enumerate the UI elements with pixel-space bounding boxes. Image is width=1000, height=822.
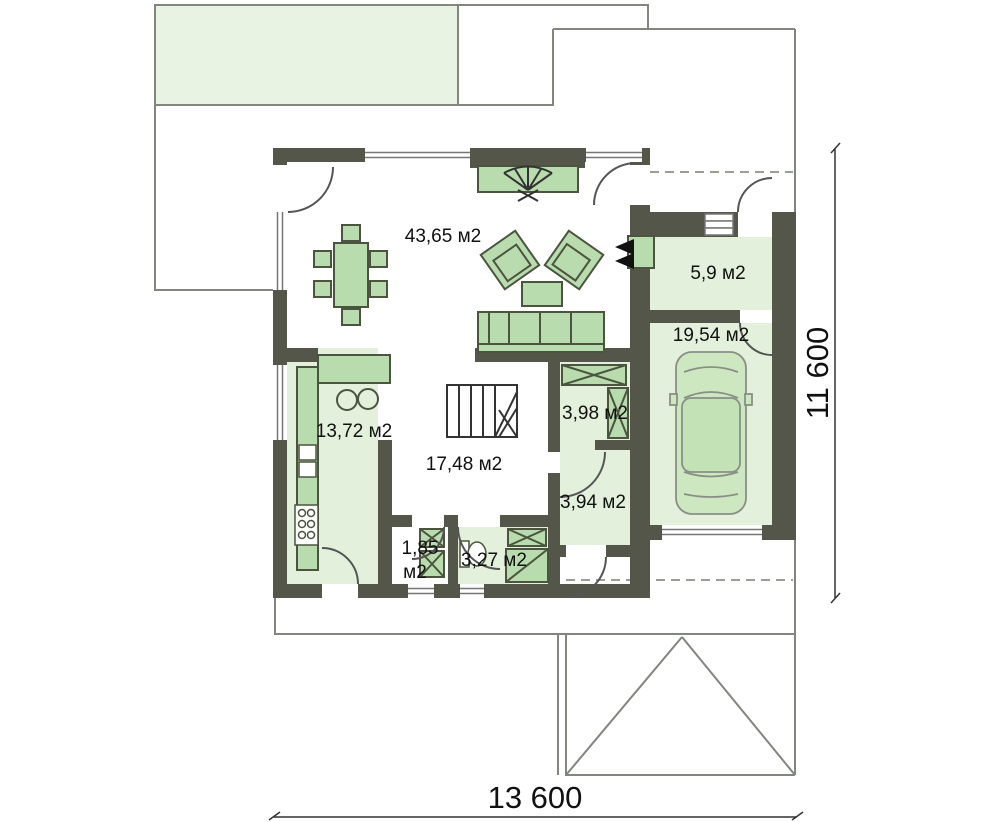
wall-kitchen-hall xyxy=(378,440,392,584)
wall-garage-south-right xyxy=(762,525,796,540)
garage-area-label: 19,54 м2 xyxy=(673,325,749,346)
bathroom-area-label: 3,27 м2 xyxy=(461,550,527,571)
entry-steps xyxy=(705,214,733,235)
hall-area-label: 17,48 м2 xyxy=(426,454,502,475)
flue-arrow-icon xyxy=(615,253,634,269)
roof-green-area xyxy=(155,5,458,105)
kitchen-area-label: 13,72 м2 xyxy=(316,421,392,442)
floor-plan-drawing: 43,65 м2 5,9 м2 19,54 м2 13,72 м2 3,98 м… xyxy=(0,0,1000,822)
dining-table xyxy=(314,225,387,325)
flue-unit xyxy=(615,236,654,269)
door-entry xyxy=(738,178,772,212)
floor-plan-canvas: 43,65 м2 5,9 м2 19,54 м2 13,72 м2 3,98 м… xyxy=(0,0,1000,822)
door-living-ne xyxy=(594,163,636,205)
wc-area-label-line2: м2 xyxy=(403,562,427,583)
sofa xyxy=(478,312,604,352)
garage-door xyxy=(662,526,762,539)
wall-kitchen-stub xyxy=(287,348,318,362)
wall-wc-bath xyxy=(448,527,458,584)
driveway-gable-lines xyxy=(566,637,795,775)
wardrobe-area-label: 3,98 м2 xyxy=(562,403,628,424)
utility-area-label: 3,94 м2 xyxy=(560,492,626,513)
living-area-label: 43,65 м2 xyxy=(405,226,481,247)
height-dimension-label: 11 600 xyxy=(800,327,835,420)
dimension-height: 11 600 xyxy=(800,143,840,603)
oven-icon xyxy=(299,445,316,460)
fireplace xyxy=(470,148,585,201)
wall-garage-south-left xyxy=(648,525,662,540)
armchair xyxy=(481,231,539,289)
coffee-table xyxy=(522,282,562,306)
width-dimension-label: 13 600 xyxy=(488,780,583,815)
wall-wardrobe-utility xyxy=(595,440,637,450)
flue-arrow-icon xyxy=(615,239,634,255)
washing-machine-icon xyxy=(508,529,546,546)
stove-icon xyxy=(295,505,318,545)
entry-area-label: 5,9 м2 xyxy=(690,263,745,284)
stairs xyxy=(447,385,517,437)
car-icon xyxy=(670,352,752,514)
wall-wing-east xyxy=(772,212,796,540)
dimension-width: 13 600 xyxy=(269,780,803,820)
door-terrace xyxy=(288,167,333,212)
driveway-outline xyxy=(558,634,795,775)
wall-entry-garage xyxy=(650,310,740,323)
apron-outline xyxy=(275,598,795,634)
dishwasher-icon xyxy=(299,462,316,477)
wc-area-label-line1: 1,85 xyxy=(402,538,439,559)
armchair xyxy=(545,231,603,289)
wall-east-inner xyxy=(630,148,650,598)
